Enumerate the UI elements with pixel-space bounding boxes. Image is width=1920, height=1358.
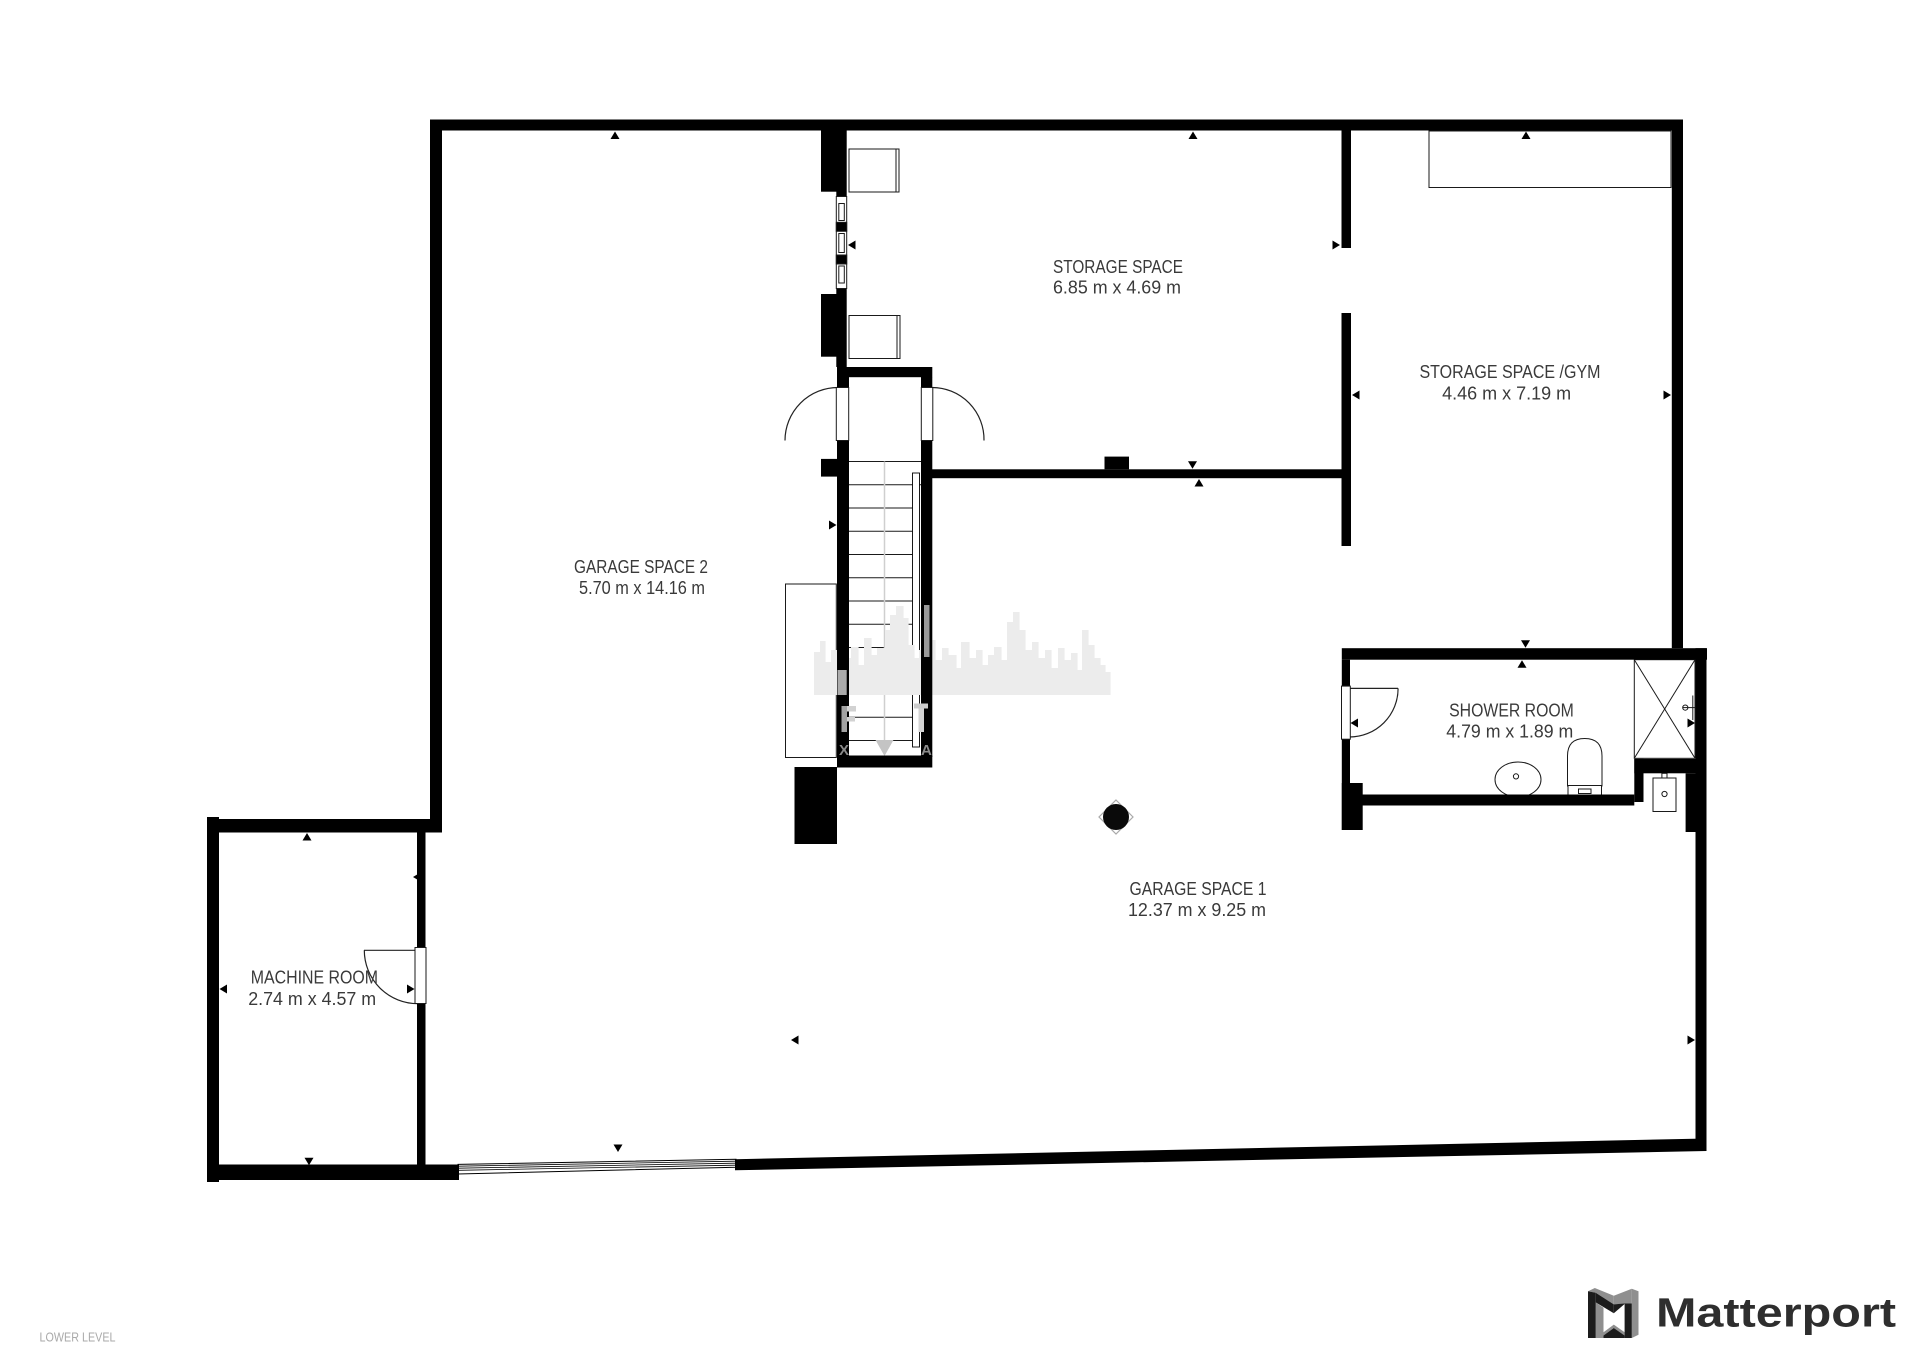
svg-text:X: X bbox=[839, 742, 849, 759]
svg-text:6.85 m x 4.69 m: 6.85 m x 4.69 m bbox=[1053, 277, 1181, 298]
svg-text:A: A bbox=[921, 742, 932, 759]
svg-text:LOWER LEVEL: LOWER LEVEL bbox=[40, 1331, 116, 1345]
svg-text:GARAGE SPACE 2: GARAGE SPACE 2 bbox=[574, 556, 708, 577]
svg-text:2.74 m x 4.57 m: 2.74 m x 4.57 m bbox=[248, 988, 376, 1009]
svg-text:12.37 m x 9.25 m: 12.37 m x 9.25 m bbox=[1128, 899, 1266, 920]
svg-text:SHOWER ROOM: SHOWER ROOM bbox=[1449, 700, 1574, 721]
svg-text:MACHINE ROOM: MACHINE ROOM bbox=[251, 967, 378, 988]
svg-text:5.70 m x 14.16 m: 5.70 m x 14.16 m bbox=[579, 577, 705, 598]
svg-text:4.79 m x 1.89 m: 4.79 m x 1.89 m bbox=[1446, 721, 1573, 742]
svg-text:4.46 m x 7.19 m: 4.46 m x 7.19 m bbox=[1442, 382, 1571, 403]
svg-text:Matterport: Matterport bbox=[1656, 1290, 1896, 1336]
svg-text:STORAGE SPACE /GYM: STORAGE SPACE /GYM bbox=[1420, 361, 1601, 382]
svg-text:STORAGE SPACE: STORAGE SPACE bbox=[1053, 256, 1183, 277]
svg-text:GARAGE SPACE 1: GARAGE SPACE 1 bbox=[1130, 878, 1267, 899]
